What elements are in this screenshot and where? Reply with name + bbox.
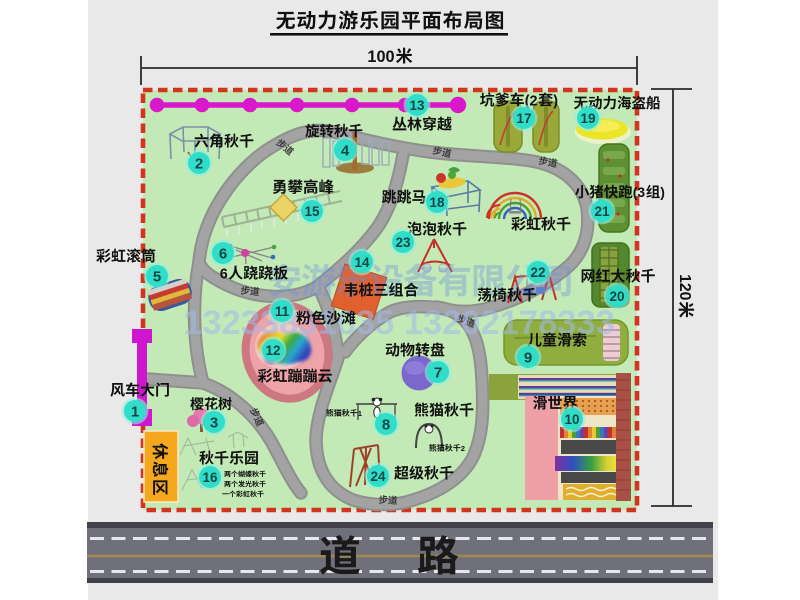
svg-text:3: 3 [210,414,218,431]
svg-text:15: 15 [304,204,320,219]
svg-text:12: 12 [265,343,280,358]
svg-text:19: 19 [580,111,595,126]
svg-text:): ) [553,93,558,109]
svg-text:13: 13 [409,98,425,113]
svg-text:9: 9 [524,349,532,366]
svg-text:10: 10 [564,412,579,427]
svg-text:(3: (3 [633,184,646,200]
svg-text:21: 21 [594,204,610,219]
svg-text:24: 24 [370,469,386,484]
svg-text:1: 1 [358,409,363,418]
svg-text:6: 6 [219,245,227,262]
svg-text:17: 17 [516,111,531,126]
svg-text:20: 20 [609,289,624,304]
svg-text:5: 5 [153,268,161,285]
svg-text:11: 11 [275,304,290,319]
svg-text:23: 23 [395,235,411,250]
svg-text:1: 1 [131,403,139,420]
svg-text:100: 100 [367,48,394,66]
svg-text:18: 18 [429,195,445,210]
svg-text:22: 22 [530,265,545,280]
svg-text:14: 14 [354,255,370,270]
svg-text:6: 6 [220,266,228,282]
svg-text:7: 7 [434,364,442,381]
svg-text:16: 16 [202,470,218,485]
svg-text:120: 120 [676,274,693,301]
svg-text:2: 2 [195,155,203,172]
svg-text:): ) [660,184,665,200]
svg-text:8: 8 [382,416,390,433]
svg-text:4: 4 [341,142,350,159]
svg-text:2: 2 [461,444,465,453]
